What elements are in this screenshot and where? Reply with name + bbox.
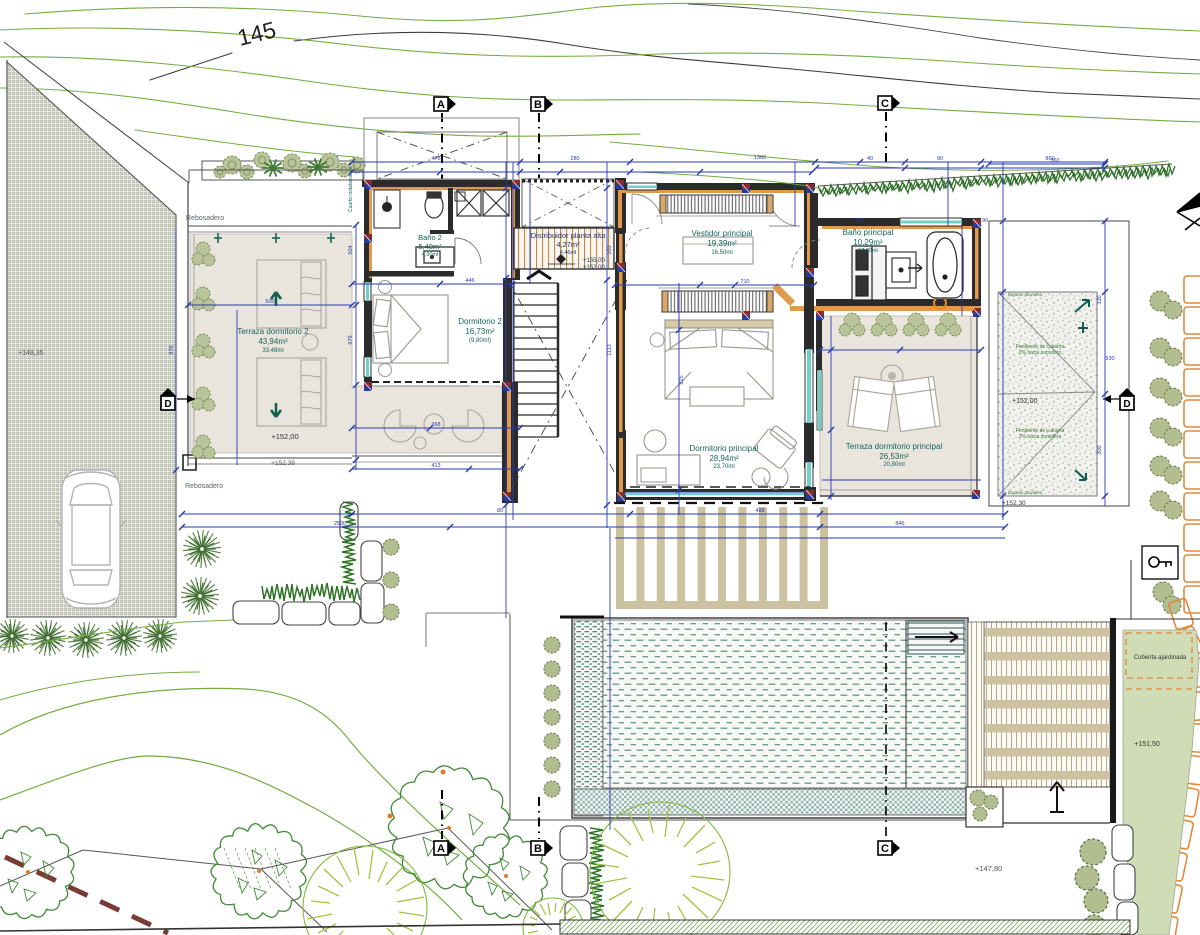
- svg-text:Vestidor principal: Vestidor principal: [692, 229, 753, 238]
- svg-text:846: 846: [895, 521, 904, 527]
- svg-text:(9,80ml): (9,80ml): [469, 338, 491, 344]
- svg-text:Dormitorio principal: Dormitorio principal: [690, 444, 759, 453]
- svg-text:19,39m²: 19,39m²: [707, 239, 737, 248]
- svg-text:876: 876: [169, 345, 175, 354]
- svg-text:Rebosadero: Rebosadero: [185, 483, 223, 490]
- svg-text:+152,00: +152,00: [583, 265, 606, 271]
- svg-text:33,48ml: 33,48ml: [262, 348, 283, 354]
- svg-text:A: A: [437, 99, 445, 111]
- svg-text:Dormitorio 2: Dormitorio 2: [458, 317, 502, 326]
- svg-text:979: 979: [348, 335, 354, 344]
- svg-text:+151,50: +151,50: [1134, 741, 1160, 748]
- svg-text:90: 90: [937, 156, 943, 162]
- svg-text:4,50ml: 4,50ml: [422, 252, 439, 258]
- svg-text:D: D: [1123, 399, 1130, 410]
- svg-text:C: C: [881, 98, 889, 110]
- svg-text:103: 103: [607, 245, 613, 254]
- svg-text:Baño 2: Baño 2: [418, 233, 442, 242]
- svg-text:446: 446: [465, 278, 474, 284]
- svg-text:280: 280: [570, 156, 579, 162]
- svg-text:16,50ml: 16,50ml: [711, 250, 732, 256]
- svg-text:43,94m²: 43,94m²: [258, 337, 288, 346]
- svg-text:Terraza dormitorio 2: Terraza dormitorio 2: [237, 327, 309, 336]
- svg-text:26,53m²: 26,53m²: [879, 452, 909, 461]
- svg-text:1113: 1113: [607, 344, 613, 355]
- svg-text:Distribuidor planta alta: Distribuidor planta alta: [531, 231, 606, 240]
- svg-text:+147,80: +147,80: [975, 864, 1002, 873]
- svg-text:B: B: [534, 843, 542, 855]
- svg-text:930: 930: [1105, 356, 1114, 362]
- svg-text:488: 488: [755, 508, 764, 514]
- svg-text:825: 825: [679, 375, 685, 384]
- svg-text:710: 710: [740, 279, 749, 285]
- svg-text:1360: 1360: [754, 155, 766, 161]
- svg-text:330: 330: [1097, 295, 1103, 304]
- svg-text:80: 80: [497, 508, 503, 514]
- svg-text:10,29m²: 10,29m²: [853, 238, 883, 247]
- svg-text:4,27m²: 4,27m²: [556, 240, 580, 249]
- svg-text:Rebosadero: Rebosadero: [186, 215, 224, 222]
- svg-text:28,94m²: 28,94m²: [709, 454, 739, 463]
- svg-text:D: D: [164, 399, 171, 410]
- svg-text:20,80ml: 20,80ml: [883, 462, 904, 468]
- svg-text:+152,00: +152,00: [271, 432, 298, 441]
- svg-text:+152,00: +152,00: [1012, 398, 1038, 405]
- svg-text:Cubierta ajardinada: Cubierta ajardinada: [1134, 655, 1187, 661]
- svg-text:2% hacia sumidero: 2% hacia sumidero: [1019, 350, 1062, 356]
- svg-text:23,70ml: 23,70ml: [713, 464, 734, 470]
- svg-text:2% hacia sumidero: 2% hacia sumidero: [1019, 434, 1062, 440]
- svg-text:40: 40: [867, 156, 873, 162]
- svg-text:5,40m²: 5,40m²: [418, 242, 442, 251]
- svg-text:+155,00: +155,00: [583, 258, 606, 264]
- svg-text:368: 368: [431, 422, 440, 428]
- svg-text:Bajante pluviales: Bajante pluviales: [1008, 292, 1043, 297]
- svg-text:275: 275: [855, 218, 864, 224]
- svg-text:17,00ml: 17,00ml: [858, 248, 878, 254]
- svg-text:476: 476: [431, 156, 440, 162]
- svg-text:C: C: [881, 843, 889, 855]
- svg-text:4,46ml: 4,46ml: [560, 250, 577, 256]
- svg-text:A: A: [437, 843, 445, 855]
- svg-text:+152,30: +152,30: [1002, 500, 1026, 507]
- svg-text:Terraza dormitorio principal: Terraza dormitorio principal: [846, 442, 943, 451]
- svg-text:Baño principal: Baño principal: [843, 228, 894, 237]
- svg-text:Bajante pluviales: Bajante pluviales: [1008, 490, 1043, 495]
- svg-text:+152,39: +152,39: [271, 460, 295, 467]
- svg-text:504: 504: [348, 245, 354, 254]
- svg-text:300: 300: [1097, 445, 1103, 454]
- svg-text:2530: 2530: [334, 521, 346, 527]
- svg-text:B: B: [534, 99, 542, 111]
- svg-text:500: 500: [265, 299, 274, 305]
- svg-text:413: 413: [431, 463, 440, 469]
- svg-text:90: 90: [982, 218, 988, 224]
- svg-text:16,73m²: 16,73m²: [465, 327, 495, 336]
- svg-text:360: 360: [1050, 158, 1059, 164]
- svg-text:+148,35: +148,35: [18, 350, 44, 357]
